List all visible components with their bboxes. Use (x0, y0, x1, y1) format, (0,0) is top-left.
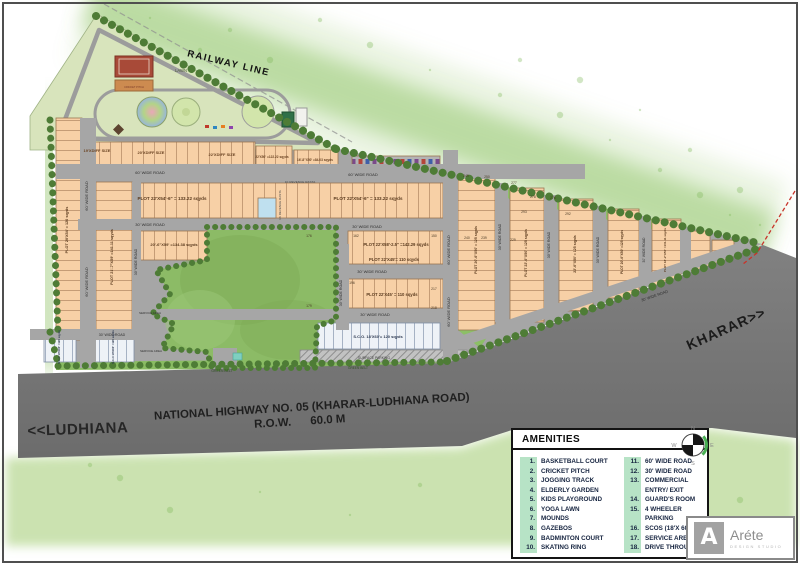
amenity-item: 9.BADMINTON COURT (520, 534, 622, 544)
amenity-label: MOUNDS (537, 514, 569, 524)
amenity-number: 9. (520, 534, 537, 544)
foliage-speckle (737, 497, 743, 503)
map-label: 20'XDIFF SIZE (138, 150, 165, 155)
arete-logo: A Aréte DESIGN STUDIO (686, 516, 795, 560)
amenity-number: 4. (520, 486, 537, 496)
plot-col-left-b (96, 182, 132, 332)
amenity-number: 8. (520, 524, 537, 534)
amenity-number: 18. (624, 543, 641, 553)
compass-s: S (691, 461, 695, 467)
amenity-number: 1. (520, 457, 537, 467)
road-60-left-vert (80, 118, 96, 368)
map-label: PLOT 22'-6"X50' = 125 sqyds (524, 229, 528, 277)
map-label: 30' WIDE ROAD (547, 231, 551, 258)
map-label: <<LUDHIANA (27, 419, 128, 440)
amenity-item: 10.SKATING RING (520, 543, 622, 553)
logo-subtitle: DESIGN STUDIO (730, 544, 782, 549)
amenity-number: 10. (520, 543, 537, 553)
plot-number: 293 (521, 210, 527, 214)
foliage-speckle (697, 192, 703, 198)
plot-number: 249 (463, 174, 469, 178)
amenity-item: 13.COMMERCIAL ENTRY/ EXIT (624, 476, 708, 495)
plot-number: 176 (306, 234, 312, 238)
map-label: S.C.O. 18'X60'= 120 sqyds (353, 334, 403, 339)
map-label: 20'-6"X59' =134.38 sqyds (150, 242, 198, 247)
reserved-plot (258, 198, 276, 218)
map-label: CRICKET PITCH (124, 85, 144, 89)
foliage-speckle (228, 28, 232, 32)
map-label: 30' WIDE ROAD (134, 248, 138, 275)
plot-number: 150 (431, 234, 437, 238)
amenity-number: 3. (520, 476, 537, 486)
amenity-label: BADMINTON COURT (537, 534, 604, 544)
amenity-label: GUARD'S ROOM (641, 495, 695, 505)
map-label: PLOT 22'X45' = 110 sqyds (366, 292, 418, 297)
amenity-number: 6. (520, 505, 537, 515)
foliage-speckle (167, 507, 173, 513)
map-label: 22'-6"X50' = 125 sqyds (573, 235, 577, 273)
plot-number: 239 (481, 236, 487, 240)
plot-number: 196 (349, 281, 355, 285)
compass-quadrant-ne (693, 434, 704, 445)
road-30-b (336, 266, 458, 277)
logo-mark-icon: A (694, 522, 724, 554)
map-label: 30' WIDE ROAD (339, 279, 343, 306)
map-label: 60' WIDE ROAD (446, 297, 451, 327)
site-plan-page: RAILWAY LINELAWNCRICKET PITCH19'XDIFF SI… (0, 0, 800, 565)
plot-number: 278 (530, 195, 536, 199)
compass-e: E (710, 443, 714, 449)
amenity-label: 30' WIDE ROAD (641, 467, 692, 477)
amenity-number: 17. (624, 534, 641, 544)
amenity-label: CRICKET PITCH (537, 467, 590, 477)
amenity-item: 4.ELDERLY GARDEN (520, 486, 622, 496)
guard-room (233, 353, 242, 360)
plot-number: 162 (353, 234, 359, 238)
map-label: 22'XDIFF SIZE (209, 152, 236, 157)
foliage-speckle (729, 214, 731, 216)
road-30-c (140, 309, 458, 320)
amenity-number: 7. (520, 514, 537, 524)
amenity-item: 1.BASKETBALL COURT (520, 457, 622, 467)
plot-number: 250 (484, 175, 490, 179)
amenities-column-1: 1.BASKETBALL COURT2.CRICKET PITCH3.JOGGI… (520, 457, 622, 553)
map-label: 30' WIDE ROAD (642, 237, 646, 263)
amenity-label: SCOS (18'X 60') (641, 524, 692, 534)
plot-number: 277 (511, 181, 517, 185)
map-label: GREEN BELT (211, 369, 232, 373)
map-label: PLOT 20'-6"X50' =125 sqyds (620, 230, 624, 274)
foliage-speckle (518, 58, 522, 62)
map-label: PLOT 18'-2"X50' =101.11 sqyds (663, 228, 667, 272)
foliage-speckle (429, 69, 431, 71)
amenity-number: 15. (624, 505, 641, 524)
amenity-label: SKATING RING (537, 543, 586, 553)
map-label: PLOT 22'X54'-6" = 133.22 sqyds (333, 196, 403, 201)
amenity-label: YOGA LAWN (537, 505, 580, 515)
amenity-label: KIDS PLAYGROUND (537, 495, 602, 505)
map-label: 1K REVENUE RASTA (278, 190, 282, 220)
amenity-number: 11. (624, 457, 641, 467)
map-label: PLOT 20'-6"X50' = 125 sqyds (474, 226, 478, 274)
amenity-number: 5. (520, 495, 537, 505)
map-label: 60' WIDE ROAD (135, 170, 165, 175)
map-label: 30' WIDE ROAD (135, 222, 165, 227)
compass-quadrant-sw (682, 445, 693, 456)
amenity-item: 2.CRICKET PITCH (520, 467, 622, 477)
map-label: S.C.O 18'X60' =120 sqyds (111, 330, 115, 364)
map-label: PLOT 22'X54'-6" = 133.22 sqyds (137, 196, 207, 201)
logo-text: Aréte DESIGN STUDIO (730, 528, 782, 549)
amenity-label: JOGGING TRACK (537, 476, 594, 486)
map-label: 19'XDIFF SIZE (84, 148, 111, 153)
foliage-speckle (577, 77, 583, 83)
map-label: 22'X50' =122.22 sqyds (255, 155, 289, 159)
foliage-speckle (498, 93, 502, 97)
foliage-speckle (737, 187, 743, 193)
map-label: 60' WIDE ROAD (84, 267, 89, 297)
map-label: GREEN BELT (348, 366, 368, 370)
compass-rose: N E S W (670, 423, 716, 467)
foliage-speckle (418, 483, 422, 487)
map-label: 30' WIDE ROAD (596, 236, 600, 263)
map-label: PLOT 21'-7"X59' =141.11 sqyds (110, 229, 114, 285)
map-label: PLOT 20'X54' = 120 sqyds (65, 207, 69, 254)
map-label: 30' WIDE ROAD (360, 312, 390, 317)
map-label: S.C.O 18'X60' =120 sqyds (57, 330, 61, 364)
amenity-label: BASKETBALL COURT (537, 457, 608, 467)
logo-name: Aréte (730, 528, 782, 543)
foliage-speckle (349, 514, 351, 516)
amenity-label: SERVICE AREA (641, 534, 692, 544)
amenity-number: 12. (624, 467, 641, 477)
foliage-speckle (759, 224, 761, 226)
amenity-item: 14.GUARD'S ROOM (624, 495, 708, 505)
map-label: PLOT 22'X45'= 110 sqyds (369, 257, 420, 262)
amenity-item: 5.KIDS PLAYGROUND (520, 495, 622, 505)
foliage-speckle (318, 18, 322, 22)
amenity-number: 14. (624, 495, 641, 505)
amenity-item: 3.JOGGING TRACK (520, 476, 622, 486)
map-label: 60' WIDE ROAD (348, 172, 378, 177)
foliage-speckle (267, 57, 273, 63)
plot-number: 218 (431, 306, 437, 310)
foliage-speckle (609, 139, 611, 141)
map-label: 60' WIDE ROAD (446, 235, 451, 265)
amenity-item: 12.30' WIDE ROAD (624, 467, 708, 477)
amenity-item: 7.MOUNDS (520, 514, 622, 524)
amenity-label: 4 WHEELER PARKING (641, 505, 682, 524)
amenity-label: GAZEBOS (537, 524, 572, 534)
amenity-number: 13. (624, 476, 641, 495)
amenity-item: 8.GAZEBOS (520, 524, 622, 534)
foliage-speckle (658, 168, 662, 172)
mounds (137, 97, 167, 127)
map-label: LAWN (175, 68, 187, 73)
road-30-right-v1 (495, 183, 508, 322)
foliage-speckle (367, 42, 373, 48)
map-label: 30' WIDE ROAD (357, 269, 387, 274)
map-label: PLOT 22'X58'-2.5" =142.29 sqyds (363, 242, 429, 247)
plot-number: 217 (431, 287, 437, 291)
map-label: 60' WIDE ROAD (84, 181, 89, 211)
map-label: 16'-8"X50' =84.03 sqyds (297, 158, 333, 162)
foliage-speckle (149, 17, 151, 19)
amenity-item: 6.YOGA LAWN (520, 505, 622, 515)
amenity-number: 16. (624, 524, 641, 534)
foliage-speckle (88, 463, 92, 467)
compass-n: N (691, 426, 695, 432)
foliage-speckle (557, 112, 563, 118)
amenity-label: COMMERCIAL ENTRY/ EXIT (641, 476, 688, 495)
foliage-speckle (639, 109, 641, 111)
map-label: 30' WIDE ROAD (498, 223, 502, 250)
map-label: 30' WIDE ROAD (352, 224, 382, 229)
plot-number: 276 (550, 196, 556, 200)
foliage-speckle (259, 491, 261, 493)
map-label: 1K REVENUE RASTA (285, 180, 316, 184)
plot-number: 292 (565, 212, 571, 216)
plot-number: 240 (464, 236, 470, 240)
plot-number: 229 (510, 238, 516, 242)
amenity-number: 2. (520, 467, 537, 477)
yoga-lawn-center (182, 108, 190, 116)
map-label: SERVICE AREA (139, 311, 161, 315)
foliage-speckle (117, 475, 123, 481)
compass-w: W (671, 443, 677, 449)
foliage-speckle (688, 148, 692, 152)
map-label: SERVICE AREA (140, 349, 162, 353)
map-label: SURFACE PARKING (358, 356, 390, 360)
plot-number: 179 (306, 304, 312, 308)
amenity-label: ELDERLY GARDEN (537, 486, 599, 496)
